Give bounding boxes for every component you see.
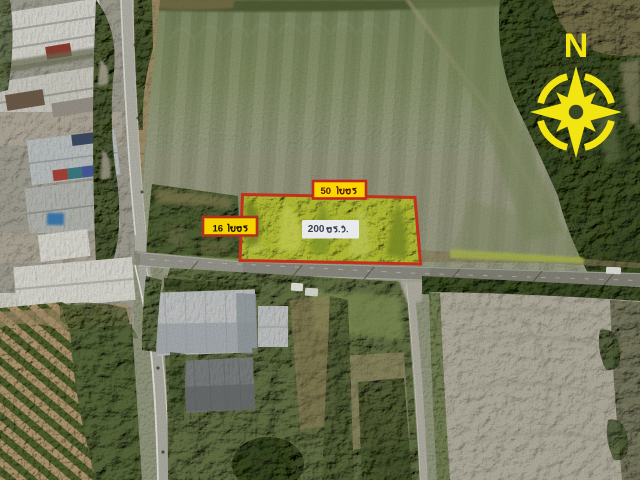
svg-text:50: 50 (321, 186, 332, 197)
svg-text:N: N (564, 27, 589, 65)
svg-text:16: 16 (213, 223, 224, 234)
svg-text:200: 200 (308, 224, 325, 235)
